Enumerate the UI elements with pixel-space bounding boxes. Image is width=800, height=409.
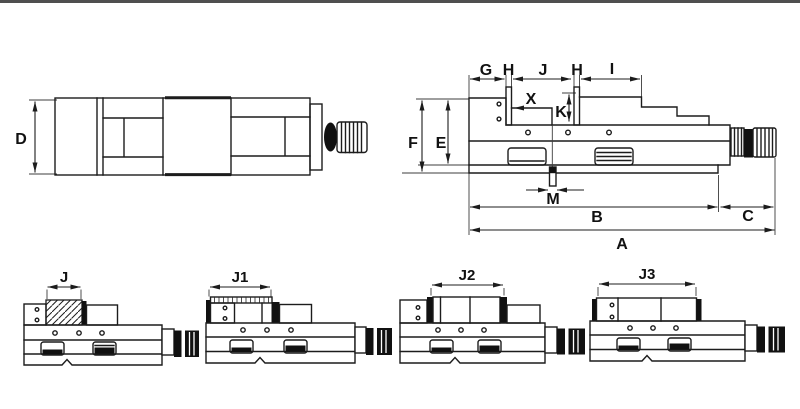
screw-knob xyxy=(174,331,199,358)
dim-label-i: I xyxy=(610,61,614,78)
variant-j: J xyxy=(24,269,199,365)
screw-knob-gap xyxy=(765,327,769,353)
technical-drawing-page: D xyxy=(0,0,800,409)
dim-label-k: K xyxy=(555,104,567,121)
bolt-hole xyxy=(566,130,571,135)
jaw-hole xyxy=(35,318,39,322)
variant-j1: J1 xyxy=(206,269,392,363)
dim-label-x: X xyxy=(526,91,537,108)
movable-jaw-block xyxy=(507,305,540,323)
wide-jaw-block xyxy=(433,297,500,323)
screw-nut xyxy=(744,129,753,158)
dim-label-d: D xyxy=(15,131,27,148)
vise-body xyxy=(206,323,355,363)
screw-knob-gap xyxy=(182,331,186,358)
bolt-hole xyxy=(241,328,245,332)
grip-right-band xyxy=(480,346,500,352)
bolt-hole xyxy=(628,326,632,330)
jaw-plate-right xyxy=(697,299,702,321)
fixed-jaw-block xyxy=(211,303,235,323)
bolt-hole xyxy=(607,130,612,135)
screw-knob xyxy=(757,327,785,353)
bolt-hole xyxy=(674,326,678,330)
fixed-jaw-steps xyxy=(580,97,710,125)
grip-right-band xyxy=(286,346,306,352)
dim-label-g: G xyxy=(480,62,492,79)
variant-label-j3: J3 xyxy=(639,266,656,283)
jaw-hole xyxy=(416,316,420,320)
dim-label-m: M xyxy=(546,191,559,208)
bolt-hole xyxy=(436,328,440,332)
grip-right-band xyxy=(95,348,115,354)
screw-knob xyxy=(557,329,585,355)
variant-label-j1: J1 xyxy=(232,269,249,286)
bolt-hole xyxy=(459,328,463,332)
dim-label-b: B xyxy=(591,209,603,226)
jaw-hole xyxy=(223,317,227,321)
grip-left xyxy=(508,148,546,165)
movable-jaw-block xyxy=(87,305,118,325)
bolt-hole xyxy=(100,331,104,335)
dim-label-j: J xyxy=(539,62,548,79)
dim-label-f: F xyxy=(408,135,418,152)
workpiece-hatched xyxy=(46,300,82,325)
dim-label-h-right: H xyxy=(571,62,583,79)
jaw-plate-right xyxy=(272,302,280,323)
jaw-hole xyxy=(497,102,501,106)
jaw-hole xyxy=(497,117,501,121)
variant-label-j: J xyxy=(60,269,68,286)
rear-cap xyxy=(310,104,322,170)
grip-right-band xyxy=(670,344,690,350)
screw-knob-gap xyxy=(565,329,569,355)
vise-body xyxy=(400,323,545,363)
jaw-plate-left xyxy=(506,87,512,125)
fixed-jaw-block xyxy=(24,304,46,325)
bolt-hole xyxy=(77,331,81,335)
dim-label-h-left: H xyxy=(503,62,515,79)
dim-label-a: A xyxy=(616,236,628,253)
bolt-hole xyxy=(651,326,655,330)
screw-ball xyxy=(324,123,337,152)
bolt-hole xyxy=(53,331,57,335)
screw-collar xyxy=(355,327,366,353)
screw-knob-gap xyxy=(374,328,378,355)
dim-label-e: E xyxy=(436,135,447,152)
movable-jaw-bold-edges xyxy=(165,98,231,175)
jaw-hole xyxy=(35,308,39,312)
bolt-hole xyxy=(526,130,531,135)
movable-jaw-block xyxy=(280,305,312,324)
bolt-hole xyxy=(289,328,293,332)
jaw-plate-right xyxy=(500,297,507,323)
screw-collar xyxy=(745,325,757,351)
grip-left-band xyxy=(43,350,63,355)
grip-left-band xyxy=(432,348,452,353)
jaw-hole xyxy=(610,315,614,319)
jaw-plate-left xyxy=(427,297,433,323)
grip-left-band xyxy=(619,346,639,351)
full-length-jaw-block xyxy=(597,298,697,321)
grip-left-band xyxy=(232,348,252,353)
variant-j2: J2 xyxy=(400,267,585,363)
bolt-hole xyxy=(265,328,269,332)
side-view: G H J H I X K F E M B C A xyxy=(402,61,776,253)
bolt-hole xyxy=(482,328,486,332)
movable-jaw-step xyxy=(512,108,553,125)
fixed-jaw-block xyxy=(400,300,427,323)
variant-label-j2: J2 xyxy=(459,267,476,284)
dim-label-c: C xyxy=(742,208,754,225)
top-view: D xyxy=(15,98,367,175)
top-view-body xyxy=(55,98,310,175)
screw-collar xyxy=(545,327,557,353)
vise-technical-drawing: D xyxy=(0,0,800,409)
variant-j3: J3 xyxy=(590,266,785,361)
jaw-hole xyxy=(416,306,420,310)
jaw-hole xyxy=(223,306,227,310)
jaw-hole xyxy=(610,303,614,307)
screw-knob xyxy=(366,328,392,355)
locating-pin-cap xyxy=(550,167,556,173)
screw-collar xyxy=(162,329,174,355)
